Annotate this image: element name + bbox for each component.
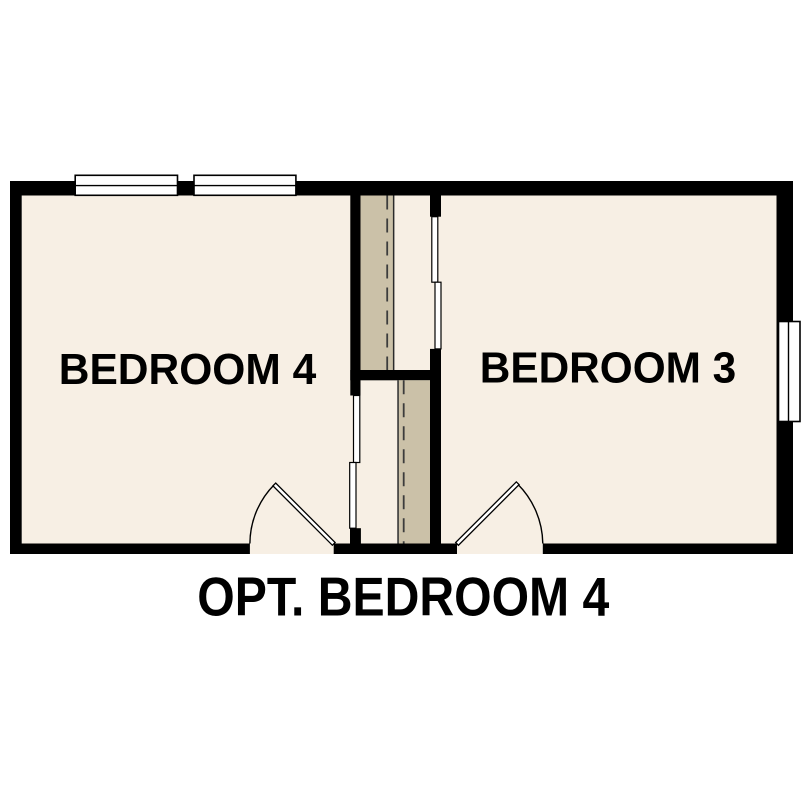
svg-text:OPT. BEDROOM 4: OPT. BEDROOM 4 [197, 566, 609, 628]
svg-text:BEDROOM 3: BEDROOM 3 [480, 344, 737, 393]
svg-text:BEDROOM 4: BEDROOM 4 [59, 345, 317, 394]
